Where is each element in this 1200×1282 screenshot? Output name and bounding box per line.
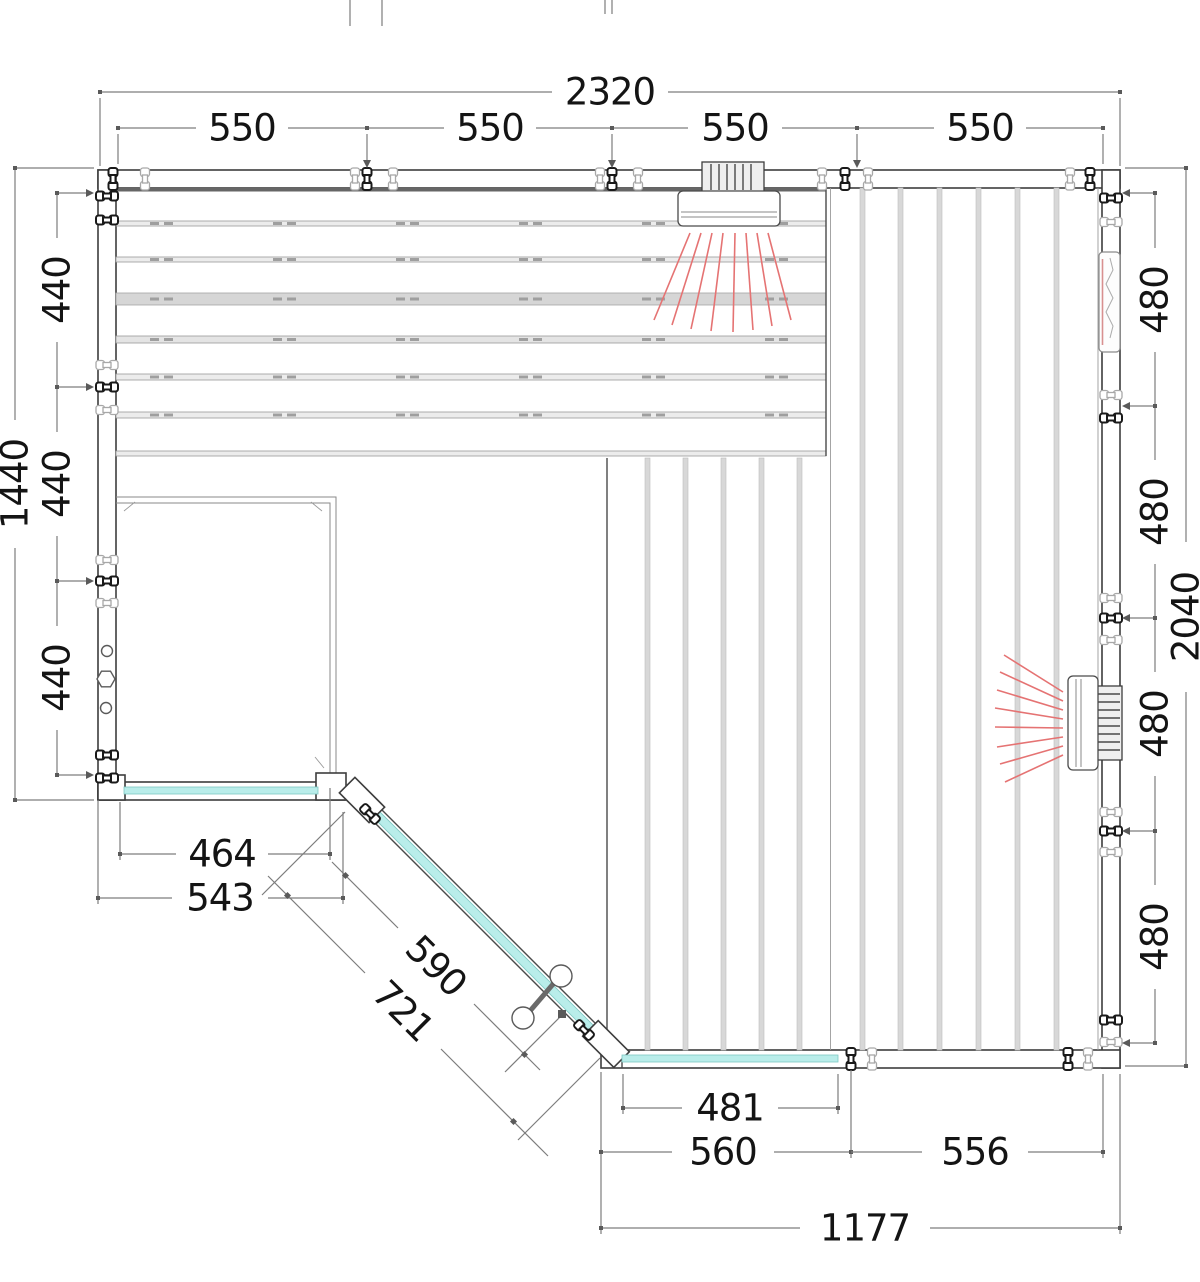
dim-label-464: 464: [188, 833, 256, 876]
cropped-extension-stubs: [350, 0, 612, 26]
dim-label-550-3: 550: [701, 107, 769, 150]
dim-label-543: 543: [186, 877, 254, 920]
floor-boards-right: [860, 188, 1098, 1050]
board-joint: [1054, 188, 1059, 1050]
dim-label-550-2: 550: [456, 107, 524, 150]
floor-plan-drawing: 2320 550 550 550 550 1440 440 440 440 20…: [0, 0, 1200, 1282]
hinge-nut-icon: [97, 671, 115, 687]
heater-body: [1096, 686, 1122, 760]
bench-slat-wide: [116, 293, 826, 305]
glass-panel-left: [124, 787, 318, 794]
dim-label-481: 481: [696, 1087, 764, 1130]
floor-plan-canvas: 2320 550 550 550 550 1440 440 440 440 20…: [0, 0, 1200, 1282]
dim-left-segments: 440 440 440: [36, 189, 95, 779]
dim-label-440-1: 440: [36, 256, 79, 324]
plank-joint-dashes: [150, 224, 826, 416]
handle-knob-outer: [550, 965, 572, 987]
board-joint: [937, 188, 942, 1050]
dim-label-550-1: 550: [208, 107, 276, 150]
dim-bottom: 481 560 556 1177: [599, 1070, 1122, 1250]
dim-label-550-4: 550: [946, 107, 1014, 150]
heater-panel: [1068, 676, 1098, 770]
dim-label-480-1: 480: [1134, 266, 1177, 334]
corner-joint-ticks: [124, 502, 324, 768]
dim-label-560: 560: [689, 1131, 757, 1174]
door-assembly: [339, 777, 629, 1067]
dim-label-556: 556: [941, 1131, 1009, 1174]
heater-panel: [678, 191, 780, 226]
dim-label-480-3: 480: [1134, 690, 1177, 758]
board-joint: [860, 188, 865, 1050]
board-joint: [1015, 188, 1020, 1050]
dim-label-top-total: 2320: [565, 71, 655, 114]
dim-label-left-total: 1440: [0, 439, 37, 529]
board-joint: [898, 188, 903, 1050]
dim-label-480-4: 480: [1134, 903, 1177, 971]
bench-slat: [116, 412, 826, 418]
dim-glass-front-left: 464 543: [96, 788, 345, 920]
board-joint: [683, 458, 688, 1050]
board-joint: [721, 458, 726, 1050]
hinge-pin-icon: [101, 703, 112, 714]
board-joint: [797, 458, 802, 1050]
bench-slat: [116, 336, 826, 343]
heat-rays-icon: [995, 655, 1063, 782]
handle-knob-inner: [512, 1007, 534, 1029]
board-joint: [759, 458, 764, 1050]
bench-slat: [116, 374, 826, 380]
dim-label-1177: 1177: [820, 1207, 910, 1250]
heat-rays-icon: [654, 233, 791, 332]
board-joint: [976, 188, 981, 1050]
dim-label-480-2: 480: [1134, 478, 1177, 546]
bench-front-edge: [116, 451, 826, 456]
hinge-pin-icon: [102, 646, 113, 657]
dim-label-440-2: 440: [36, 450, 79, 518]
glass-panel-bottom: [622, 1055, 838, 1062]
floor-boards-middle: [607, 458, 802, 1050]
dim-top-segments: 550 550 550 550: [116, 107, 1105, 169]
door-witness-dot: [558, 1010, 566, 1018]
inner-glass-room: [98, 497, 346, 800]
dim-label-440-3: 440: [36, 644, 79, 712]
dim-label-right-total: 2040: [1165, 572, 1200, 662]
wall-mounted-panel: [1099, 252, 1120, 352]
board-joint: [645, 458, 650, 1050]
